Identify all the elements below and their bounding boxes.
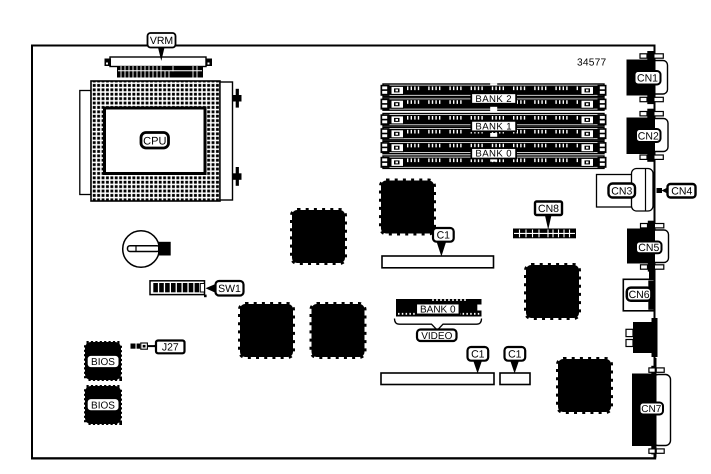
svg-text:C1: C1: [508, 349, 522, 361]
svg-text:BANK 0: BANK 0: [420, 305, 456, 316]
svg-text:VRM: VRM: [150, 35, 173, 47]
svg-text:CN6: CN6: [629, 289, 650, 301]
svg-text:C1: C1: [437, 230, 451, 242]
svg-text:BANK 2: BANK 2: [475, 94, 512, 105]
svg-text:CN3: CN3: [611, 186, 632, 198]
svg-text:CN4: CN4: [671, 186, 692, 198]
svg-text:CN5: CN5: [638, 242, 659, 254]
svg-text:BANK 0: BANK 0: [475, 149, 512, 160]
svg-text:BIOS: BIOS: [91, 357, 115, 368]
svg-text:CN7: CN7: [641, 404, 661, 415]
svg-text:C1: C1: [471, 349, 485, 361]
svg-text:CN1: CN1: [637, 73, 658, 85]
svg-text:SW1: SW1: [218, 283, 241, 295]
svg-text:CPU: CPU: [143, 135, 166, 147]
svg-text:CN8: CN8: [538, 203, 559, 215]
svg-text:CN2: CN2: [638, 130, 659, 142]
svg-text:BANK 1: BANK 1: [475, 122, 512, 133]
svg-text:BIOS: BIOS: [91, 400, 115, 411]
svg-text:J27: J27: [162, 342, 179, 354]
svg-text:VIDEO: VIDEO: [421, 331, 452, 342]
svg-text:34577: 34577: [577, 58, 606, 69]
